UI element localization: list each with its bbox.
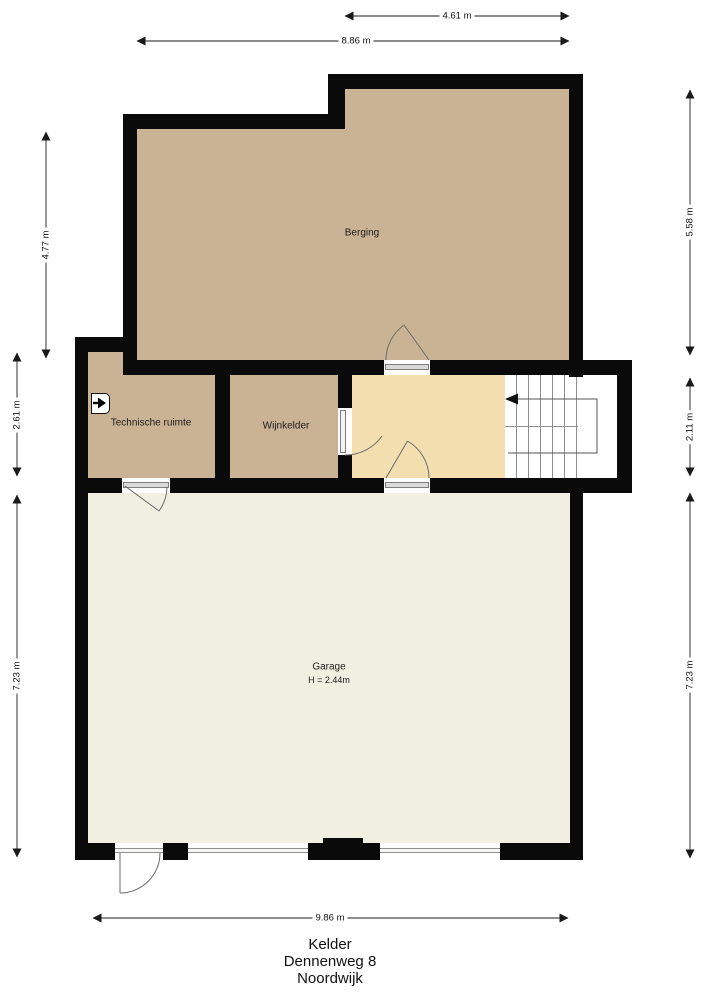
door-swing-arc-hall — [408, 441, 430, 478]
dim-label-bottom: 9.86 m — [312, 913, 347, 924]
dim-label-right-upper: 5.58 m — [685, 204, 696, 239]
dimension-lines — [17, 16, 690, 918]
room-label-berging: Berging — [345, 228, 379, 239]
door-swing-arc-wijnkelder — [345, 436, 382, 455]
dim-label-right-lower: 7.23 m — [685, 657, 696, 692]
plan-footer: Kelder Dennenweg 8 Noordwijk — [284, 936, 377, 987]
dim-label-right-middle: 2.11 m — [685, 410, 696, 444]
dim-label-left-middle: 2.61 m — [12, 397, 23, 432]
footer-address: Dennenweg 8 — [284, 953, 377, 970]
stair-walkline — [508, 399, 597, 453]
door-swing-arc-berging — [386, 325, 404, 360]
door-swing-leaf-berging — [404, 325, 429, 360]
stairs-direction-arrow-icon — [505, 394, 518, 405]
door-swing-arc-exterior — [120, 853, 160, 893]
dim-label-top-inner: 4.61 m — [439, 11, 474, 22]
door-swing-leaf-hall — [386, 441, 408, 478]
door-swings — [120, 325, 429, 893]
dim-label-left-lower: 7.23 m — [12, 658, 23, 693]
dim-label-left-upper: 4.77 m — [41, 227, 52, 262]
room-label-technische: Technische ruimte — [111, 418, 192, 429]
door-swing-leaf-technische — [125, 486, 159, 511]
dim-label-top-outer: 8.86 m — [338, 36, 373, 47]
plan-linework-layer — [0, 0, 707, 1000]
footer-city: Noordwijk — [284, 970, 377, 987]
door-swing-arc-technische — [159, 487, 167, 511]
room-label-garage: Garage — [312, 662, 345, 673]
floorplan-canvas: 4.61 m 8.86 m 4.77 m 2.61 m 7.23 m 5.58 … — [0, 0, 707, 1000]
room-label-garage-height: H = 2.44m — [308, 675, 350, 685]
room-label-wijnkelder: Wijnkelder — [263, 421, 310, 432]
footer-floor-name: Kelder — [284, 936, 377, 953]
